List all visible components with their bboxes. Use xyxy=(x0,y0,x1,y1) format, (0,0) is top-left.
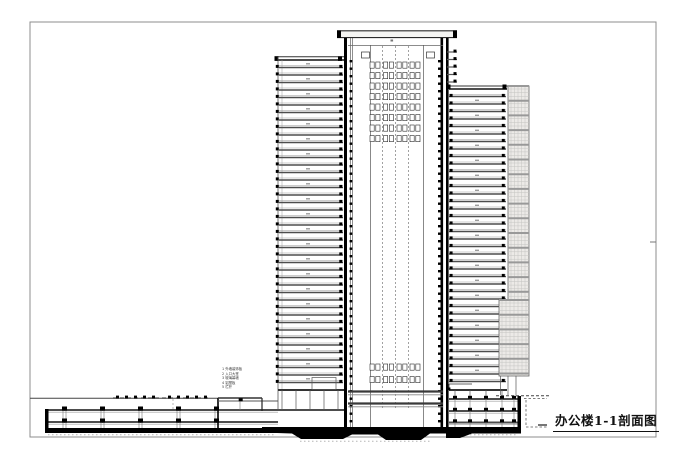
legend-item: 5 栏杆 xyxy=(222,385,242,390)
legend-item: 1 外墙装饰板 xyxy=(222,367,242,372)
foundation-mat xyxy=(262,427,521,440)
drawing-sheet: 1 外墙装饰板 2 入口大堂 3 玻璃幕墙 4 铝塑板 5 栏杆 办公楼1-1剖… xyxy=(0,0,673,466)
notes-legend: 1 外墙装饰板 2 入口大堂 3 玻璃幕墙 4 铝塑板 5 栏杆 xyxy=(222,367,242,390)
title-block: 办公楼1-1剖面图 xyxy=(553,410,653,432)
left-wing-floors xyxy=(275,56,346,410)
drawing-title: 办公楼1-1剖面图 xyxy=(553,410,659,432)
central-tower-core xyxy=(337,30,457,428)
scale-mark xyxy=(538,424,547,426)
section-drawing-canvas xyxy=(0,0,673,466)
